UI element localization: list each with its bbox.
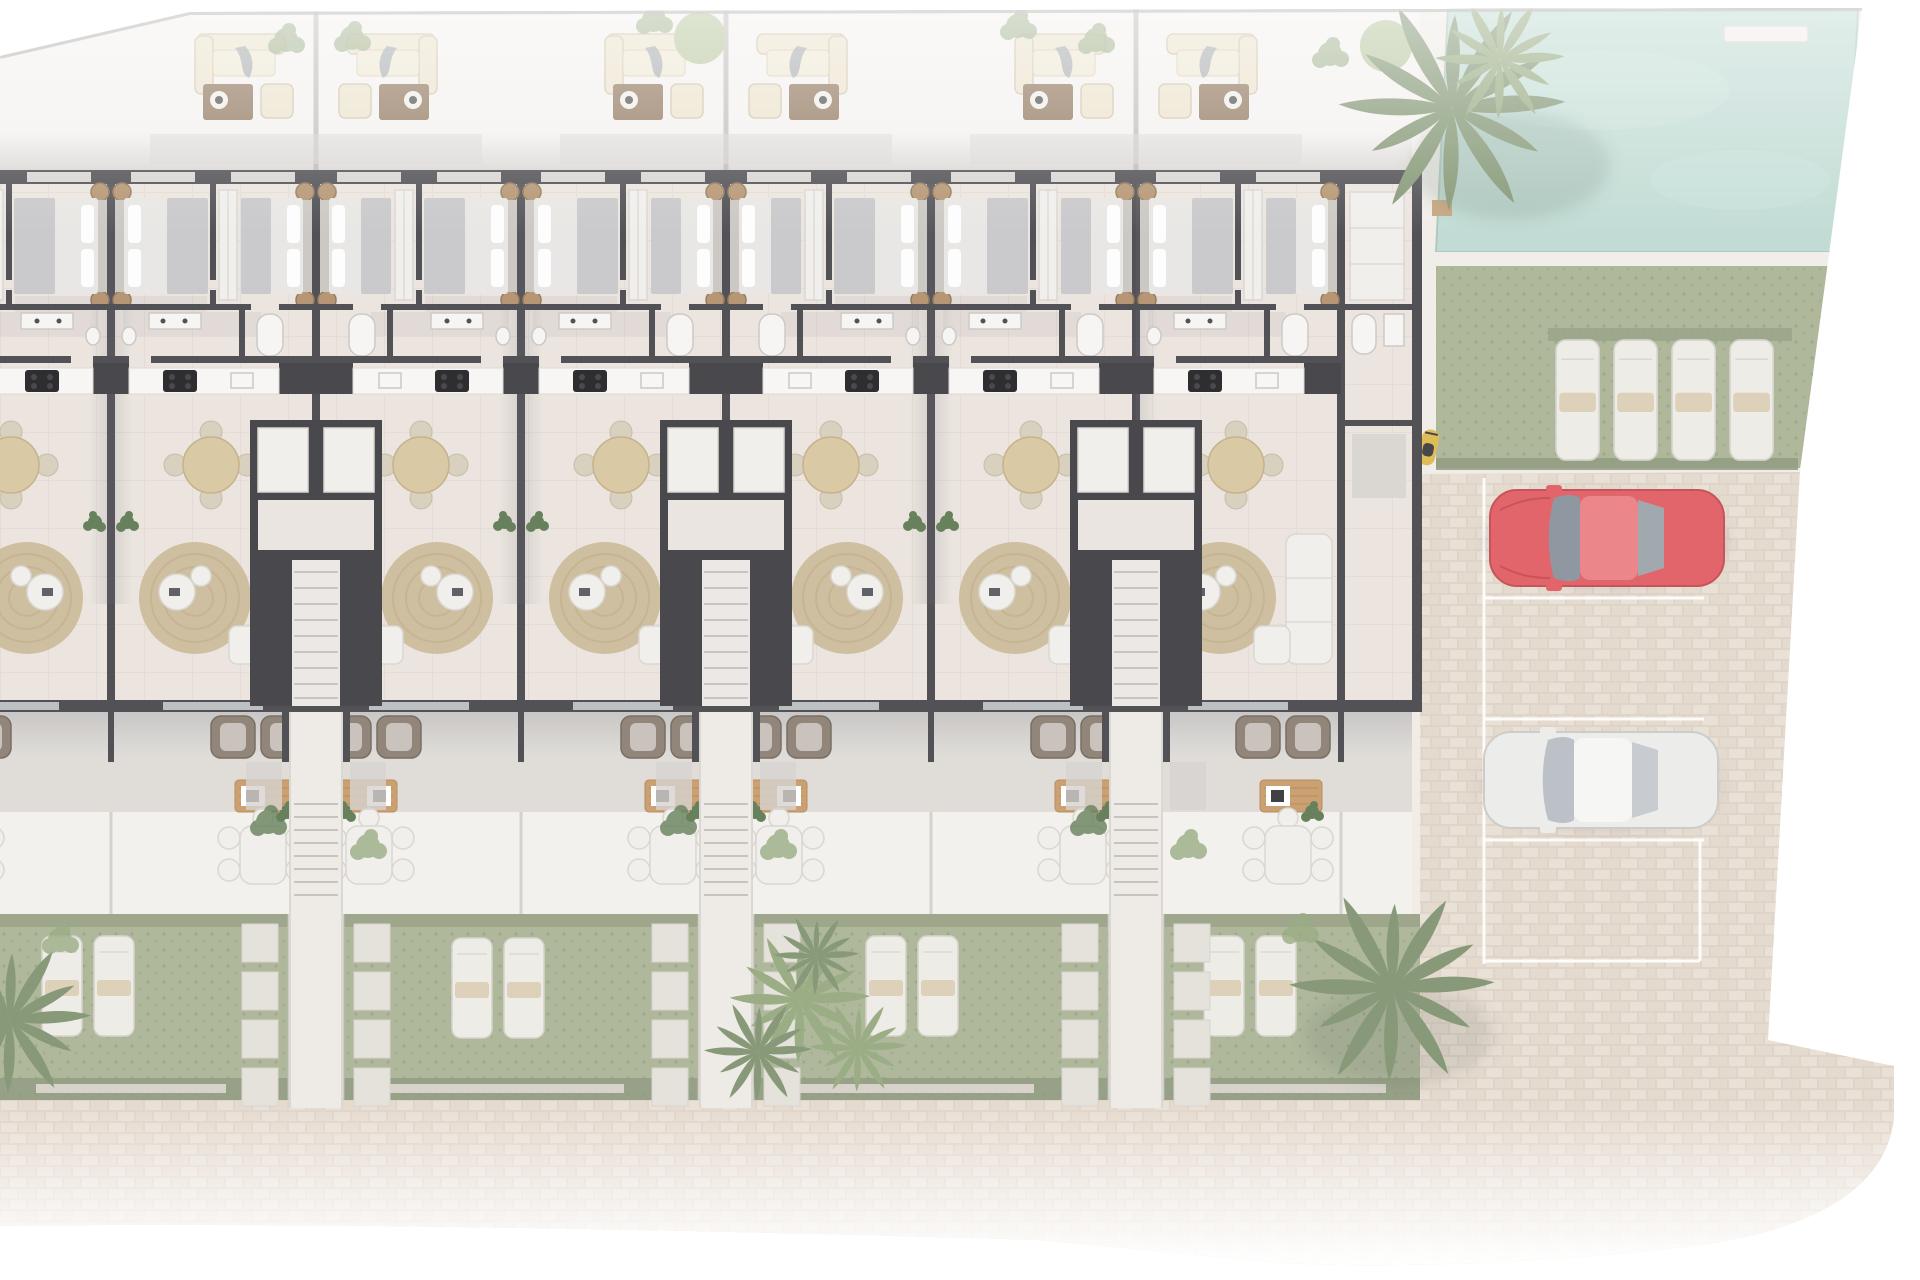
site-plan-canvas xyxy=(0,0,1920,1280)
floor-plan-rendering xyxy=(0,0,1920,1280)
global-haze xyxy=(0,0,1920,1280)
